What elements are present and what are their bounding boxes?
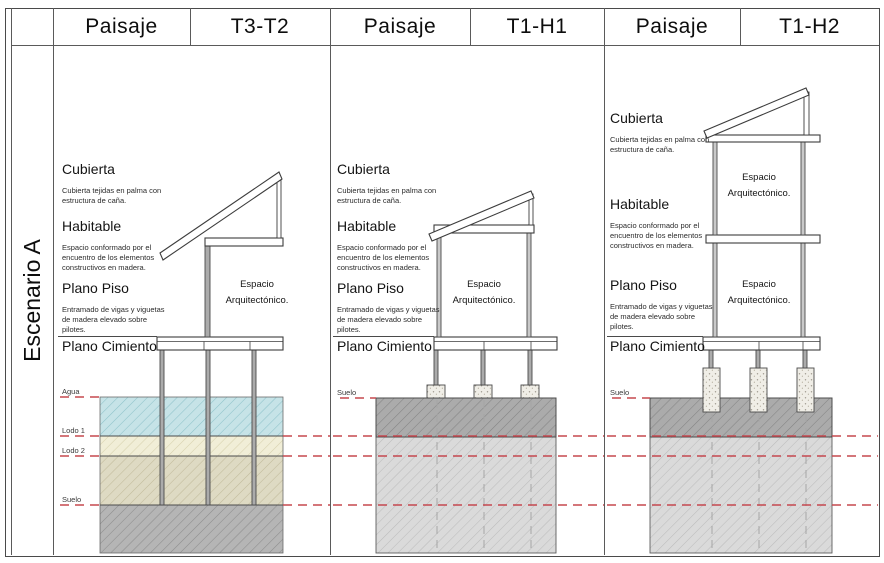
p1-desc-cubierta: Cubierta tejidas en palma con estructura…	[62, 186, 164, 206]
p3-title-habitable: Habitable	[610, 196, 669, 212]
p1-desc-plano-piso: Entramado de vigas y viguetas de madera …	[62, 305, 166, 334]
p2-title-plano-piso: Plano Piso	[337, 280, 404, 296]
p1-label-lodo2: Lodo 2	[62, 446, 85, 455]
p1-label-agua: Agua	[62, 387, 80, 396]
p1-title-plano-piso: Plano Piso	[62, 280, 129, 296]
p2-desc-cubierta: Cubierta tejidas en palma con estructura…	[337, 186, 439, 206]
p3-title-cubierta: Cubierta	[610, 110, 663, 126]
roof-beam	[160, 172, 282, 260]
footings	[427, 385, 539, 398]
drawing-sheet: Escenario A Paisaje T3-T2 Paisaje T1-H1 …	[0, 0, 884, 563]
p3-label-suelo: Suelo	[610, 388, 629, 397]
floor-platform	[434, 337, 557, 350]
header-paisaje-panel3: Paisaje	[604, 8, 740, 45]
floor-platform	[703, 337, 820, 350]
header-paisaje-panel2: Paisaje	[330, 8, 470, 45]
p1-cimiento-line	[58, 336, 157, 337]
mid-beam	[706, 235, 820, 243]
p1-title-habitable: Habitable	[62, 218, 121, 234]
ground-block	[376, 398, 556, 553]
floor-platform	[157, 337, 283, 350]
header-code-panel1: T3-T2	[190, 8, 330, 45]
p1-title-plano-cimiento: Plano Cimiento	[62, 338, 157, 354]
top-beam	[205, 238, 283, 246]
scenario-column: Escenario A	[12, 45, 53, 555]
p3-title-plano-cimiento: Plano Cimiento	[610, 338, 705, 354]
pilotes	[434, 350, 532, 385]
pilotes	[709, 350, 807, 368]
p3-cimiento-line	[607, 336, 703, 337]
p1-desc-habitable: Espacio conformado por el encuentro de l…	[62, 243, 166, 272]
p1-label-suelo: Suelo	[62, 495, 81, 504]
p3-space-label-upper: Espacio Arquitectónico.	[714, 170, 804, 201]
roof-fascia-post	[804, 92, 809, 135]
p2-title-habitable: Habitable	[337, 218, 396, 234]
p2-cimiento-line	[333, 336, 434, 337]
p3-desc-plano-piso: Entramado de vigas y viguetas de madera …	[610, 302, 714, 331]
layer-suelo	[100, 505, 283, 553]
ground-block	[650, 398, 832, 553]
p2-title-plano-cimiento: Plano Cimiento	[337, 338, 432, 354]
header-code-panel2: T1-H1	[470, 8, 604, 45]
p3-desc-cubierta: Cubierta tejidas en palma con estructura…	[610, 135, 712, 155]
p3-space-label-lower: Espacio Arquitectónico.	[714, 277, 804, 308]
structure	[429, 191, 534, 337]
p2-label-suelo: Suelo	[337, 388, 356, 397]
p1-label-lodo1: Lodo 1	[62, 426, 85, 435]
p3-title-plano-piso: Plano Piso	[610, 277, 677, 293]
central-post	[205, 246, 210, 337]
roof-beam	[704, 88, 809, 138]
header-paisaje-panel1: Paisaje	[53, 8, 190, 45]
roof-fascia-post	[277, 179, 281, 238]
p1-space-label: Espacio Arquitectónico.	[212, 277, 302, 308]
header-code-panel3: T1-H2	[740, 8, 879, 45]
p2-title-cubierta: Cubierta	[337, 161, 390, 177]
p2-desc-plano-piso: Entramado de vigas y viguetas de madera …	[337, 305, 441, 334]
top-beam	[706, 135, 820, 142]
p2-space-label: Espacio Arquitectónico.	[439, 277, 529, 308]
structure	[160, 172, 283, 337]
footings	[703, 368, 814, 412]
p3-desc-habitable: Espacio conformado por el encuentro de l…	[610, 221, 714, 250]
p2-desc-habitable: Espacio conformado por el encuentro de l…	[337, 243, 441, 272]
scenario-label: Escenario A	[19, 239, 46, 362]
p1-title-cubierta: Cubierta	[62, 161, 115, 177]
